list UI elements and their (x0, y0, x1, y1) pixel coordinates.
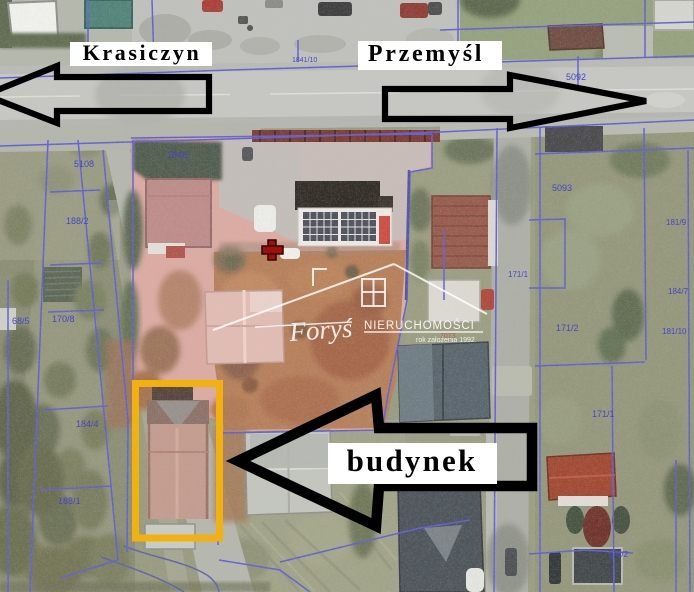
svg-text:budynek: budynek (347, 443, 478, 478)
svg-text:NIERUCHOMOŚCI: NIERUCHOMOŚCI (364, 319, 475, 332)
svg-text:7073: 7073 (440, 333, 456, 340)
svg-text:Krasiczyn: Krasiczyn (83, 40, 202, 65)
svg-text:Przemyśl: Przemyśl (368, 41, 484, 67)
svg-text:Foryś: Foryś (287, 313, 354, 347)
